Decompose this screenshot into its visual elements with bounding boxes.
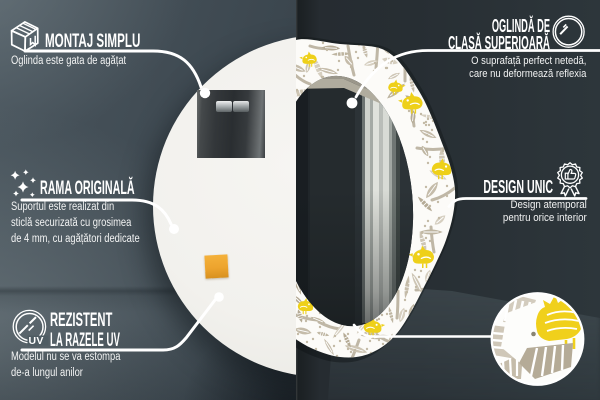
svg-text:UV: UV [29,335,44,347]
